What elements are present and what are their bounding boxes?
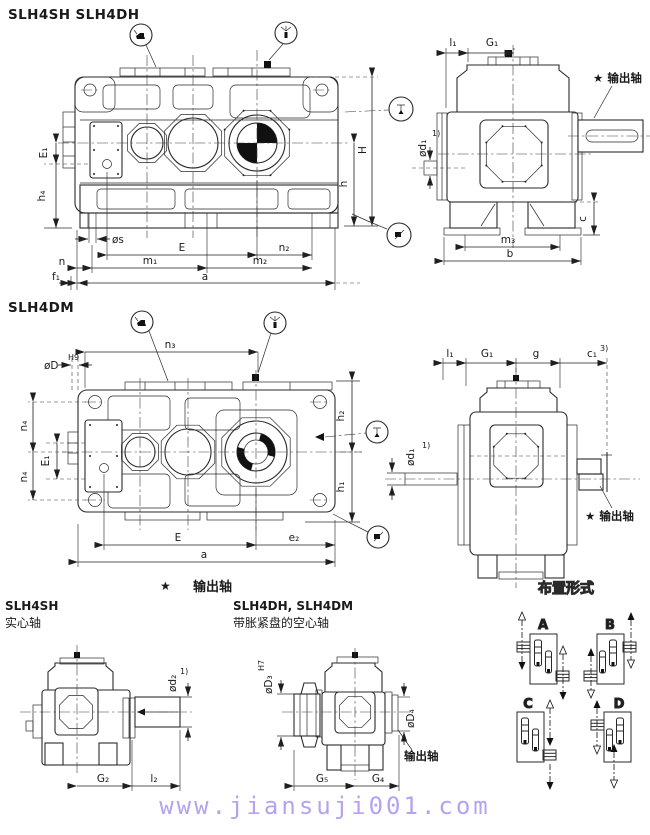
dim-m3: m₃ xyxy=(501,234,515,246)
dim-h1: h₁ xyxy=(335,482,347,493)
gearbox-dimension-drawing: SLH4SH SLH4DH SLH4DM xyxy=(0,0,650,835)
breather-balloon xyxy=(258,312,286,373)
arrangement-c-label: C xyxy=(523,697,533,712)
breather-plug xyxy=(264,61,271,68)
dim-G4: G₄ xyxy=(372,773,384,785)
dim-a: a xyxy=(201,549,207,561)
dim-os: øs xyxy=(112,234,124,246)
view-slh4sh-slh4dh-side: øs E n₂ n m₁ m₂ f₁ a xyxy=(36,22,413,290)
dim-E: E xyxy=(179,242,186,254)
arrangement-a-label: A xyxy=(538,618,548,633)
arrangement-b: B xyxy=(584,612,636,698)
view-slh4dm-end: ★ 输出轴 l₁ G₁ g c₁ 3) ød₁ 1) xyxy=(385,344,640,588)
oil-level-balloon xyxy=(315,421,388,443)
arrangement-forms: 布置形式 A B C xyxy=(517,580,636,790)
dim-od2: ød₂ xyxy=(167,675,179,692)
dim-G1: G₁ xyxy=(486,37,498,49)
dim-l1: l₁ xyxy=(449,37,456,49)
dim-E: E xyxy=(175,532,182,544)
dim-n4-bottom: n₄ xyxy=(18,472,30,483)
breather-symbol-icon xyxy=(270,316,280,328)
detail-solid-shaft: SLH4SH 实心轴 ød₂ 1) xyxy=(5,599,192,791)
dim-m2: m₂ xyxy=(253,255,267,267)
oil-fill-balloon xyxy=(131,311,168,381)
dim-n4-top: n₄ xyxy=(18,421,30,432)
gearbox-end-view xyxy=(20,645,192,775)
dim-b: b xyxy=(507,248,514,260)
dim-oD-tolerance: H9 xyxy=(68,353,79,362)
arrangement-b-label: B xyxy=(605,618,615,633)
shrink-disc-output xyxy=(577,452,612,492)
page-title: SLH4SH SLH4DH xyxy=(8,7,139,23)
breather-balloon xyxy=(269,22,297,60)
detail-hollow-model: SLH4DH, SLH4DM xyxy=(233,599,353,613)
oil-drain-symbol-icon xyxy=(395,230,404,239)
detail-hollow-shaft: SLH4DH, SLH4DM 带胀紧盘的空心轴 输出轴 xyxy=(233,599,439,791)
output-shaft-callout: ★ 输出轴 xyxy=(585,486,634,523)
dim-g: g xyxy=(533,348,540,360)
dim-oD4: øD₄ xyxy=(405,709,417,728)
dim-n2: n₂ xyxy=(279,242,290,254)
dim-E1: E₁ xyxy=(38,148,50,159)
dim-e2: e₂ xyxy=(289,532,300,544)
dim-h2: h₂ xyxy=(335,411,347,422)
legend-label: 输出轴 xyxy=(193,579,232,595)
oil-drain-symbol-icon xyxy=(374,532,383,541)
inspection-cover-plate xyxy=(90,122,122,178)
hollow-shaft-end xyxy=(392,695,398,731)
dim-G2: G₂ xyxy=(97,773,109,785)
dim-h: h xyxy=(338,181,350,188)
dim-a: a xyxy=(202,271,208,283)
detail-solid-model: SLH4SH xyxy=(5,599,58,613)
output-shaft-callout: ★ 输出轴 xyxy=(593,71,642,118)
oil-drain-balloon xyxy=(333,514,389,548)
feet xyxy=(478,555,564,579)
dim-l2: l₂ xyxy=(150,773,157,785)
inspection-cover-plate xyxy=(85,420,122,492)
dim-oD3: øD₃ xyxy=(263,675,275,694)
dim-oD: øD xyxy=(44,360,59,372)
dim-f1: f₁ xyxy=(52,271,60,283)
dim-c: c xyxy=(577,216,589,222)
dim-od1-note: 1) xyxy=(422,441,430,450)
dim-n: n xyxy=(59,256,66,268)
oil-level-balloon xyxy=(345,97,413,121)
dim-G5: G₅ xyxy=(316,773,328,785)
view-slh4sh-slh4dh-end: ★ 输出轴 l₁ G₁ ød₁ 1) m₃ b c xyxy=(412,37,650,265)
dim-oD3-tolerance: H7 xyxy=(257,660,266,671)
arrangement-title: 布置形式 xyxy=(538,580,594,597)
legend-output-shaft: ★ 输出轴 xyxy=(160,579,232,595)
oil-level-symbol-icon xyxy=(373,428,381,437)
oil-fill-symbol-icon xyxy=(134,30,145,39)
gearbox-end-view xyxy=(282,648,412,780)
oil-drain-balloon xyxy=(352,214,411,247)
dim-l1: l₁ xyxy=(446,348,453,360)
footer-watermark-url: www.jiansuji001.com xyxy=(159,792,491,820)
dim-h4: h₄ xyxy=(36,191,48,202)
breather-plug xyxy=(505,50,512,57)
oil-fill-symbol-icon xyxy=(135,317,146,326)
output-shaft-label: ★ 输出轴 xyxy=(593,71,642,85)
legend-star: ★ xyxy=(160,579,171,593)
dim-c1-note: 3) xyxy=(600,344,608,353)
output-shaft-label: 输出轴 xyxy=(404,749,439,763)
view-slh4dm-side: n₃ øD H9 n₄ E₁ n₄ E e₂ a xyxy=(18,311,389,567)
dim-E1: E₁ xyxy=(40,456,52,467)
bearing-bores xyxy=(122,410,298,495)
arrangement-a: A xyxy=(517,612,569,700)
arrangement-d-label: D xyxy=(614,697,625,712)
oil-fill-balloon xyxy=(130,24,156,67)
detail-solid-type: 实心轴 xyxy=(5,615,41,630)
base-rail xyxy=(80,185,338,228)
detail-hollow-type: 带胀紧盘的空心轴 xyxy=(233,615,329,630)
drawing-sheet: SLH4SH SLH4DH SLH4DM xyxy=(0,0,650,835)
dim-od1: ød₁ xyxy=(405,449,417,466)
dim-n3: n₃ xyxy=(165,339,176,351)
output-shaft-label: ★ 输出轴 xyxy=(585,509,634,523)
dim-c1: c₁ xyxy=(587,348,597,360)
dim-od2-note: 1) xyxy=(180,667,188,676)
arrangement-d: D xyxy=(591,697,631,788)
model-title-slh4dm: SLH4DM xyxy=(8,300,74,316)
oil-level-symbol-icon xyxy=(397,105,405,114)
dim-od1: ød₁ xyxy=(417,140,429,157)
dim-od1-note: 1) xyxy=(432,129,440,138)
feet xyxy=(444,202,581,235)
arrangement-c: C xyxy=(517,697,556,790)
dim-G1: G₁ xyxy=(481,348,493,360)
dim-H: H xyxy=(357,146,369,154)
breather-symbol-icon xyxy=(281,26,291,38)
breather-plug xyxy=(252,374,259,381)
dim-m1: m₁ xyxy=(143,255,157,267)
